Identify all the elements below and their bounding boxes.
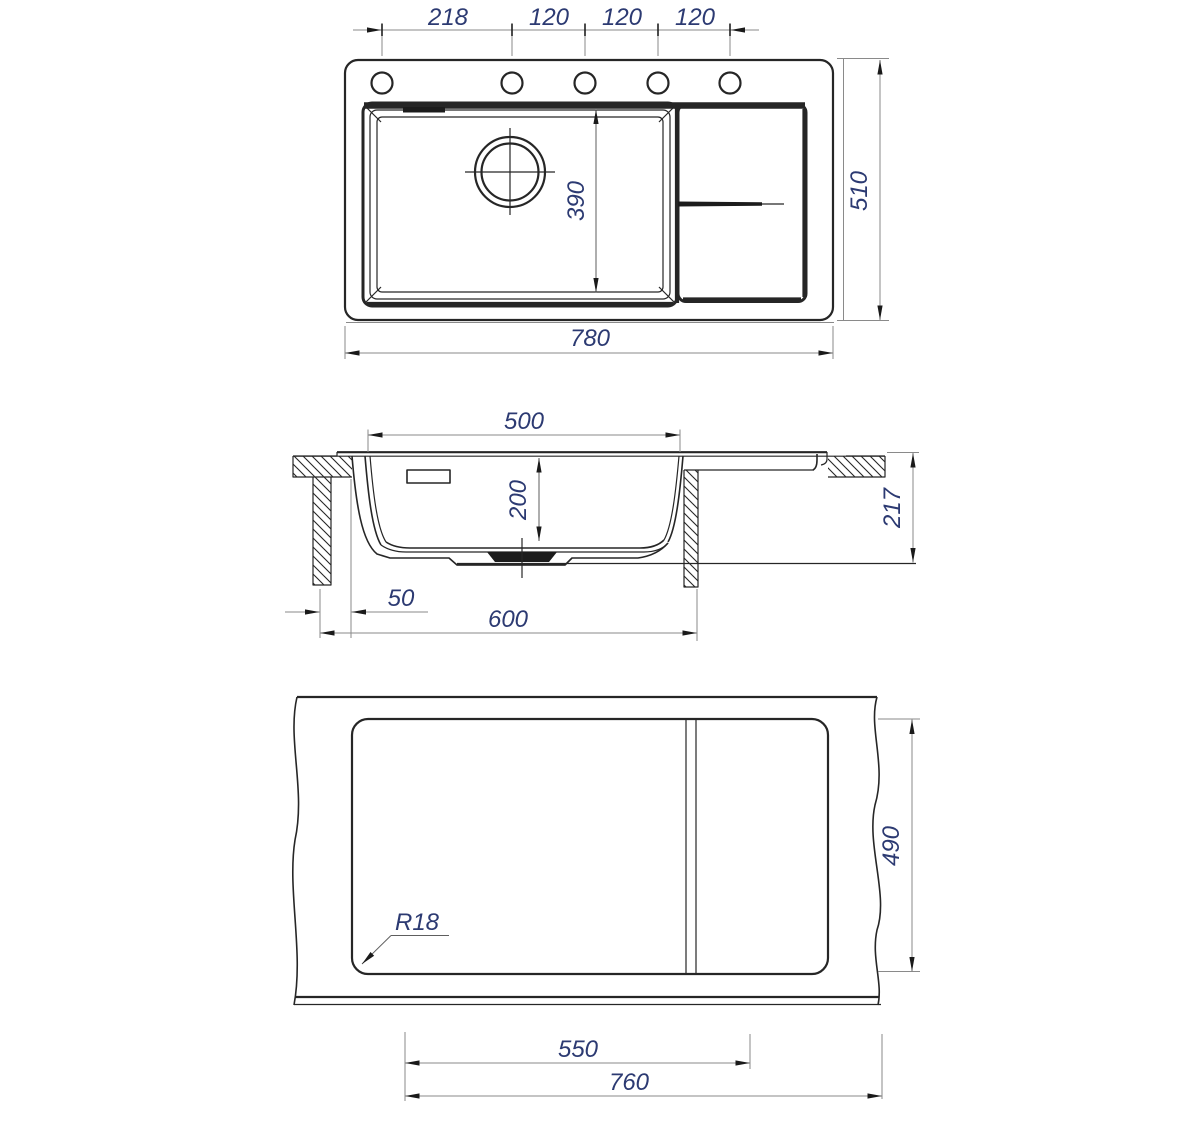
dim-cabinet-width: 600 bbox=[320, 589, 697, 641]
dim-label-r18: R18 bbox=[395, 909, 440, 936]
dim-label-500: 500 bbox=[504, 408, 545, 435]
faucet-hole-2 bbox=[502, 73, 523, 94]
dim-label-218: 218 bbox=[427, 4, 469, 31]
drain bbox=[465, 128, 555, 215]
dim-label-600: 600 bbox=[488, 606, 529, 633]
top-view: 218 120 120 120 510 780 390 bbox=[345, 4, 889, 359]
dim-width: 780 bbox=[345, 325, 833, 359]
dim-bowl-depth: 200 bbox=[505, 458, 539, 541]
dim-extension-lines bbox=[382, 36, 730, 56]
countertop-right-block bbox=[828, 456, 885, 477]
dim-label-200: 200 bbox=[505, 479, 532, 521]
dim-label-780: 780 bbox=[570, 325, 611, 352]
faucet-hole-4 bbox=[648, 73, 669, 94]
cabinet-side-left bbox=[313, 477, 331, 585]
dim-label-50: 50 bbox=[388, 585, 415, 612]
dim-label-550: 550 bbox=[558, 1036, 599, 1063]
worktop-edge bbox=[293, 697, 881, 1005]
dim-label-120-a: 120 bbox=[529, 4, 570, 31]
countertop-section bbox=[293, 456, 885, 587]
dim-label-490: 490 bbox=[878, 825, 905, 866]
faucet-hole-1 bbox=[372, 73, 393, 94]
worktop-break-line-left bbox=[293, 697, 299, 1005]
dim-bowl-zone: 550 bbox=[405, 1032, 750, 1101]
overflow-opening bbox=[407, 470, 450, 483]
drainboard-groove bbox=[678, 202, 762, 207]
bowl-bottom-inner bbox=[386, 540, 664, 548]
dim-hole-spacing: 218 120 120 120 bbox=[353, 4, 759, 56]
dim-label-217: 217 bbox=[879, 486, 906, 529]
dim-bowl-inner: 390 bbox=[563, 110, 596, 293]
callout-leader bbox=[362, 936, 391, 965]
cutout-view: R18 490 550 760 bbox=[293, 697, 920, 1101]
dim-label-760: 760 bbox=[609, 1069, 650, 1096]
dim-label-120-b: 120 bbox=[602, 4, 643, 31]
cutout-divider-lines bbox=[686, 719, 696, 974]
faucet-hole-5 bbox=[720, 73, 741, 94]
faucet-hole-3 bbox=[575, 73, 596, 94]
countertop-left-block bbox=[293, 456, 352, 477]
dim-bowl-width: 500 bbox=[368, 408, 680, 452]
bowl-right-wall-inner bbox=[668, 456, 683, 542]
drawing-canvas: 218 120 120 120 510 780 390 bbox=[0, 0, 1184, 1132]
dim-label-390: 390 bbox=[563, 180, 590, 221]
dim-label-510: 510 bbox=[846, 170, 873, 211]
bowl-left-wall-inner bbox=[365, 456, 381, 545]
dim-label-120-c: 120 bbox=[675, 4, 716, 31]
faucet-holes bbox=[372, 73, 741, 94]
dim-cutout-width: 760 bbox=[405, 1034, 882, 1099]
cabinet-side-right bbox=[684, 470, 698, 587]
section-view: 500 200 217 50 600 bbox=[285, 408, 919, 641]
radius-callout: R18 bbox=[362, 909, 449, 964]
overflow-slot bbox=[403, 107, 445, 113]
dim-depth: 510 bbox=[837, 59, 889, 321]
technical-drawing: 218 120 120 120 510 780 390 bbox=[0, 0, 1184, 1132]
dim-cutout-depth: 490 bbox=[878, 719, 920, 972]
sink-rim-section bbox=[293, 452, 885, 470]
drainboard bbox=[678, 105, 806, 302]
